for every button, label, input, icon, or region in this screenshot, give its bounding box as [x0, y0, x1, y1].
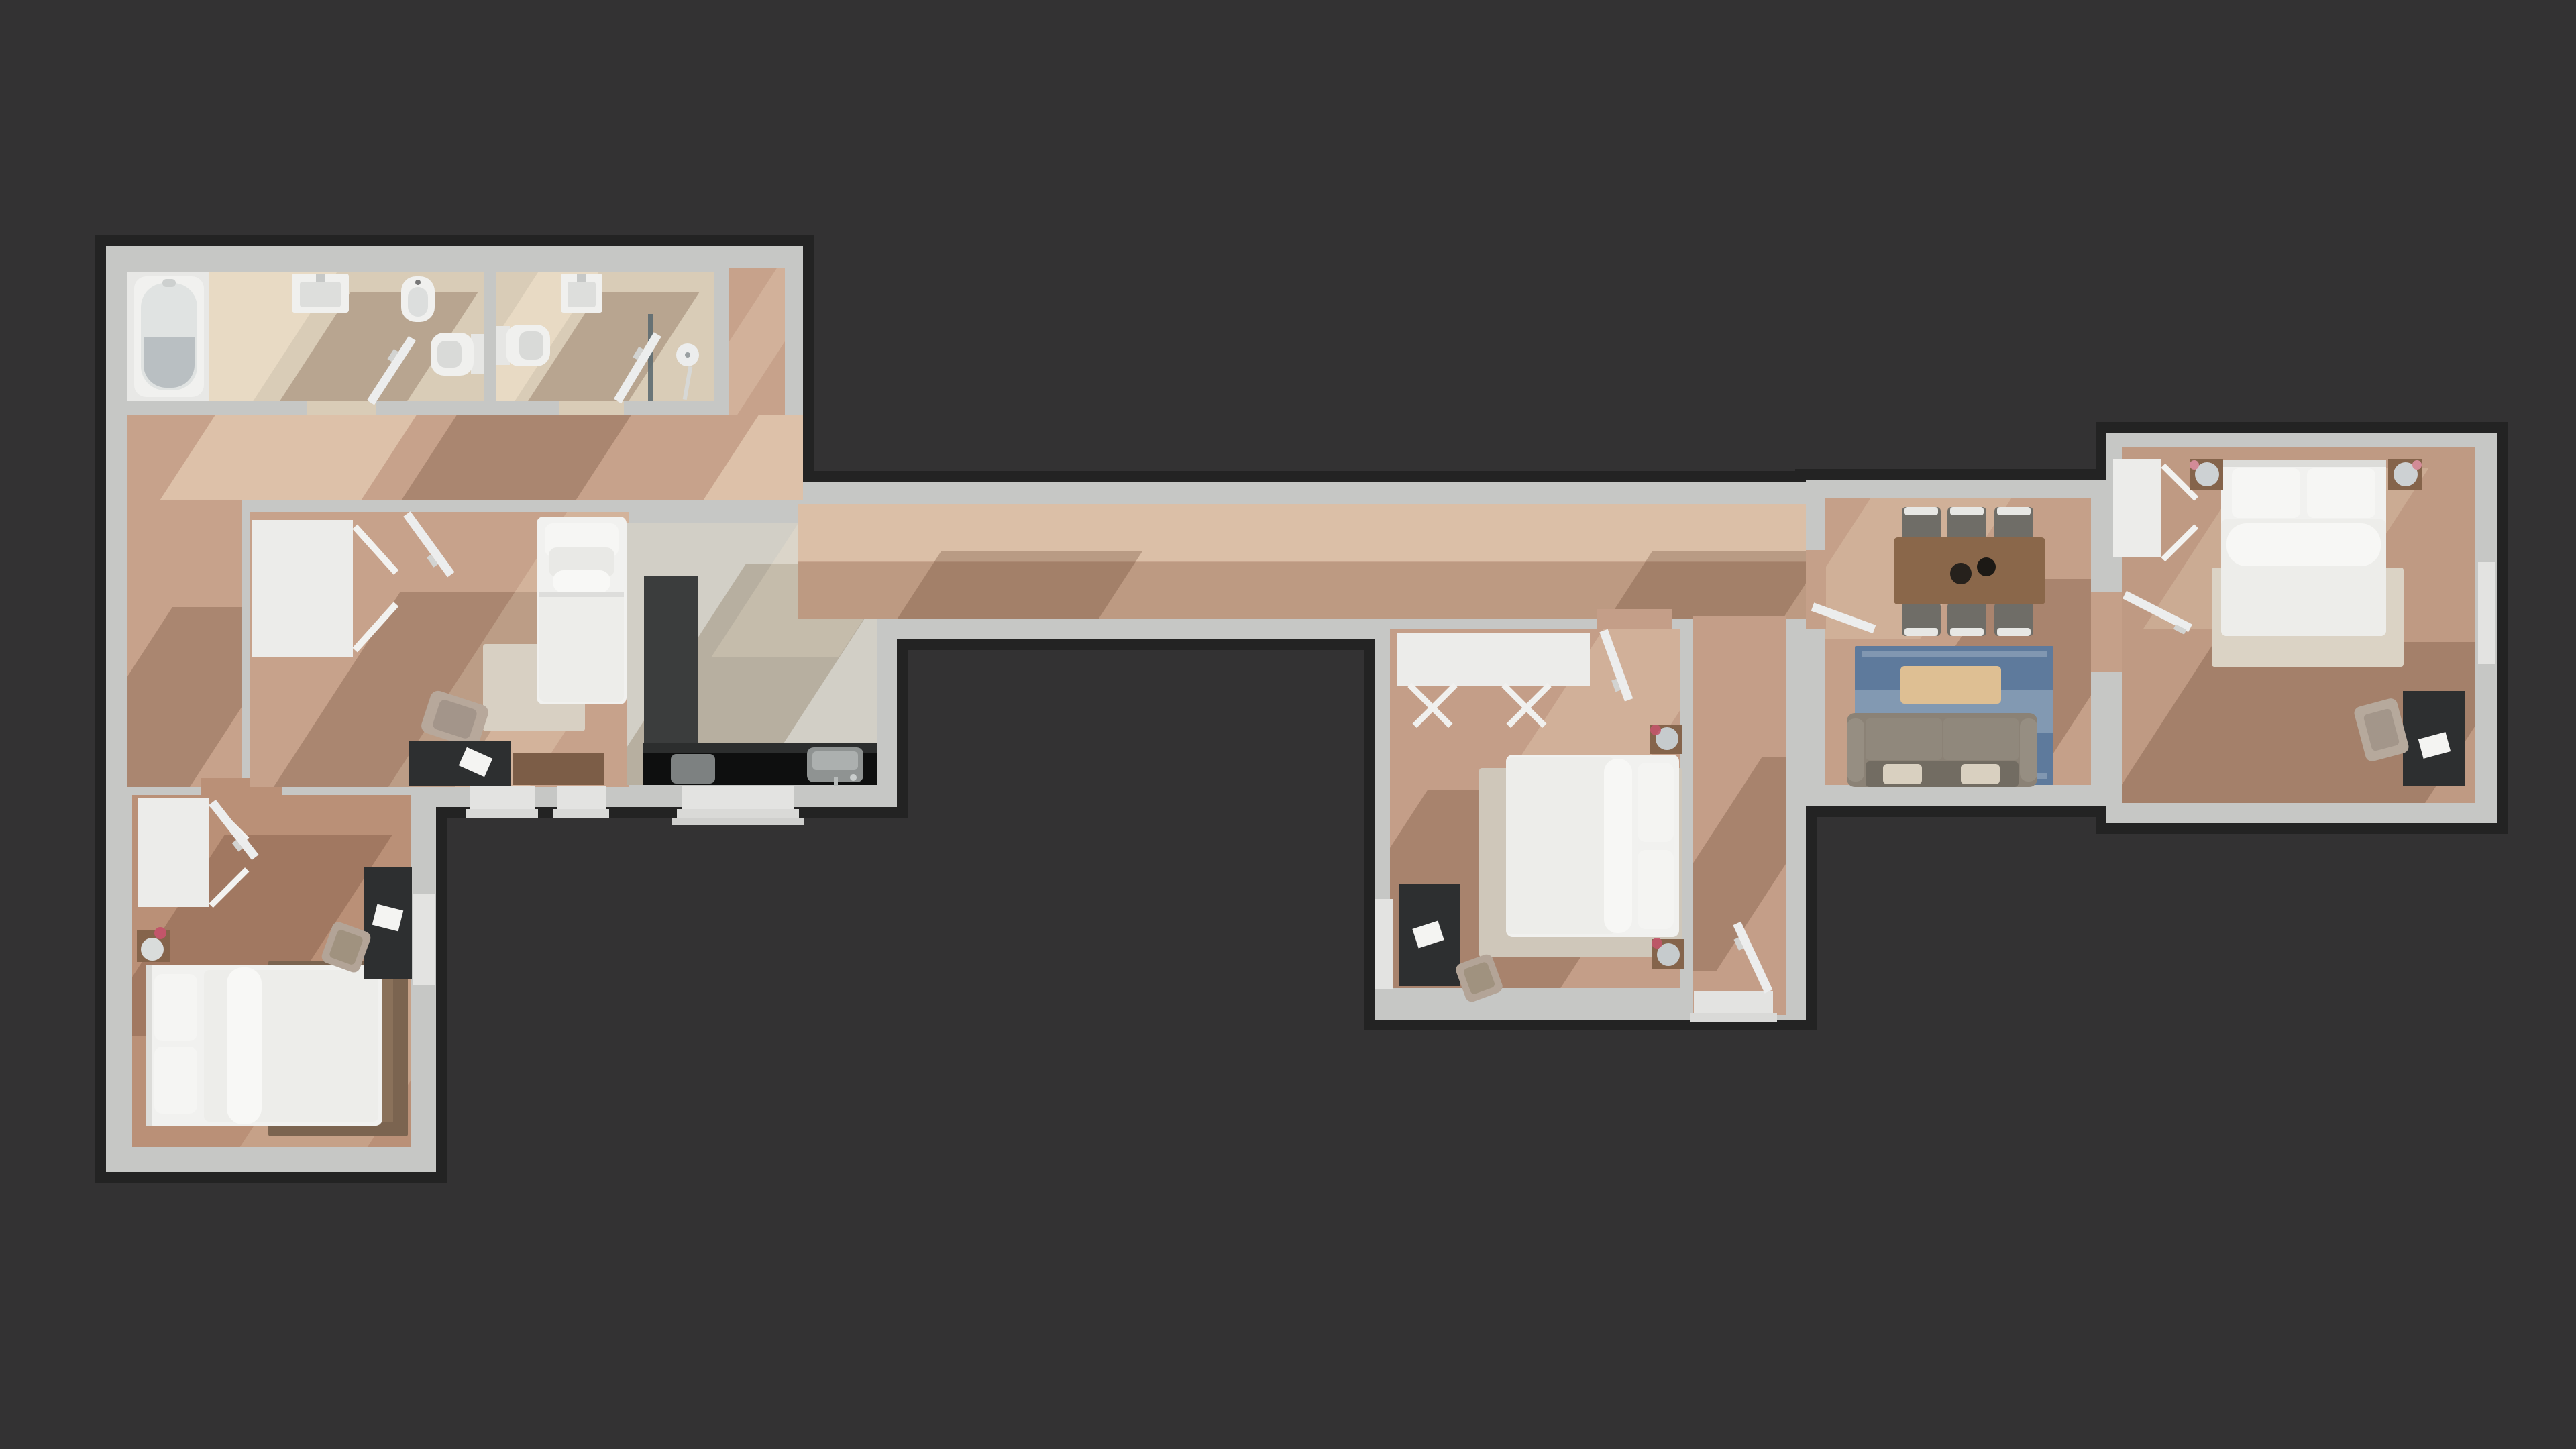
toilet-seat	[519, 331, 543, 360]
floorplan-render-root	[0, 0, 2576, 1449]
balcony-door-sill	[682, 786, 794, 809]
bowl	[1977, 557, 1996, 576]
entry-door-sill	[1694, 991, 1773, 1013]
double-bed	[2221, 460, 2386, 636]
toilet	[506, 325, 550, 366]
sofa	[1847, 713, 2037, 787]
chair-back	[1997, 507, 2031, 515]
wardrobe	[138, 798, 209, 907]
wardrobe	[1397, 633, 1590, 686]
single-bed	[537, 517, 627, 704]
nightstand	[1652, 939, 1684, 969]
sink-tap-stem	[834, 777, 838, 786]
dining-chair	[1902, 602, 1941, 636]
sill-step	[672, 818, 804, 825]
sink-tap	[577, 274, 586, 282]
hall-strip-floor	[127, 415, 803, 500]
dining-chair	[1947, 602, 1986, 636]
dining-chair	[1994, 507, 2033, 541]
chair-seat	[2363, 708, 2400, 752]
headboard	[2221, 460, 2386, 467]
toilet-seat	[437, 341, 462, 368]
double-bed	[146, 965, 382, 1126]
shadow-band	[402, 415, 631, 500]
table-lamp	[141, 938, 164, 961]
wardrobe	[2113, 459, 2161, 557]
sofa-cushion	[1961, 764, 2000, 784]
toilet	[431, 333, 474, 376]
headboard	[146, 965, 152, 1126]
double-bed	[1506, 755, 1679, 937]
window-sill	[1375, 899, 1393, 989]
sink-basin	[300, 282, 341, 307]
chair-back	[1904, 628, 1938, 636]
sink-basin	[812, 751, 858, 770]
desk	[364, 867, 412, 979]
sideboard	[513, 753, 604, 785]
sink	[292, 274, 349, 313]
duvet-fold	[539, 592, 624, 597]
nightstand	[2388, 459, 2422, 490]
sofa-armrest	[1847, 718, 1864, 782]
sofa-cushion	[1883, 764, 1922, 784]
open-book	[2418, 732, 2451, 759]
living-west-door-gap	[1806, 550, 1826, 629]
duvet-roll	[2226, 523, 2381, 566]
bathtub	[134, 276, 204, 397]
duvet-roll	[1604, 759, 1632, 933]
window-sill	[557, 786, 606, 809]
rug-border	[1862, 651, 2047, 657]
bidet-basin	[408, 287, 428, 317]
light-band	[704, 415, 803, 500]
duvet	[539, 592, 624, 702]
flowers	[2190, 460, 2199, 470]
open-book	[459, 747, 493, 777]
shower-head	[676, 343, 699, 366]
coffee-table	[1900, 666, 2001, 704]
duvet-roll	[553, 570, 610, 593]
nightstand	[137, 930, 170, 962]
open-book	[372, 904, 404, 932]
chair-seat	[431, 698, 478, 740]
nightstand	[2190, 459, 2223, 490]
pillow	[154, 974, 197, 1041]
nightstand	[1650, 724, 1682, 754]
open-book	[1412, 921, 1444, 949]
light-band	[729, 268, 785, 415]
desk	[409, 741, 511, 786]
bathtub-faucet	[162, 279, 176, 287]
floorplan-stage	[0, 0, 2576, 1449]
bathroom-2-door-gap	[559, 401, 624, 416]
hall-left-floor	[127, 500, 241, 787]
chair-seat	[1462, 961, 1495, 996]
pillow	[1638, 763, 1674, 842]
chair-back	[1950, 628, 1984, 636]
flowers	[1650, 724, 1661, 735]
desk	[1399, 884, 1460, 986]
flowers	[1652, 938, 1662, 949]
bowl	[1950, 563, 1972, 584]
sink-basin	[568, 282, 596, 307]
shadow-band	[127, 607, 241, 787]
hall-top-floor	[729, 268, 785, 415]
kitchen-sink	[807, 747, 863, 782]
window-sill	[2478, 562, 2495, 664]
bathroom-1-door-gap	[307, 401, 376, 416]
bidet-tap	[415, 280, 421, 285]
wardrobe	[252, 520, 353, 657]
dining-chair	[1902, 507, 1941, 541]
sill-step	[677, 809, 799, 818]
pillow	[1638, 850, 1674, 929]
window-sill	[413, 894, 435, 985]
dining-chair	[1994, 602, 2033, 636]
sill-step	[1690, 1013, 1777, 1022]
sill-step	[553, 809, 609, 818]
sofa-seat	[1866, 718, 1942, 760]
pillow	[2307, 468, 2375, 518]
shower-head-center	[685, 352, 690, 358]
flowers	[2412, 460, 2422, 470]
corridor-floor	[798, 504, 1806, 619]
flowers	[154, 927, 166, 939]
chair-seat	[329, 928, 364, 965]
light-band	[160, 415, 417, 500]
sill-step	[466, 809, 538, 818]
chair-back	[1997, 628, 2031, 636]
duvet-roll	[227, 967, 262, 1124]
bathtub-water	[144, 337, 195, 388]
cooktop	[671, 754, 715, 784]
duvet	[1506, 757, 1615, 934]
sofa-seat	[1943, 718, 2019, 760]
window-sill	[470, 786, 535, 809]
bidet	[401, 276, 435, 322]
living-east-door-gap	[2091, 592, 2123, 672]
sofa-armrest	[2020, 718, 2037, 782]
chair-back	[1950, 507, 1984, 515]
sink-tap	[316, 274, 325, 282]
chair-back	[1904, 507, 1938, 515]
sink	[561, 274, 602, 313]
vcorridor-floor	[1693, 629, 1786, 1015]
pillow	[154, 1046, 197, 1114]
pillow	[2232, 468, 2300, 518]
sink-tap	[850, 774, 857, 781]
dining-chair	[1947, 507, 1986, 541]
desk	[2403, 691, 2465, 786]
dining-table	[1894, 537, 2045, 604]
